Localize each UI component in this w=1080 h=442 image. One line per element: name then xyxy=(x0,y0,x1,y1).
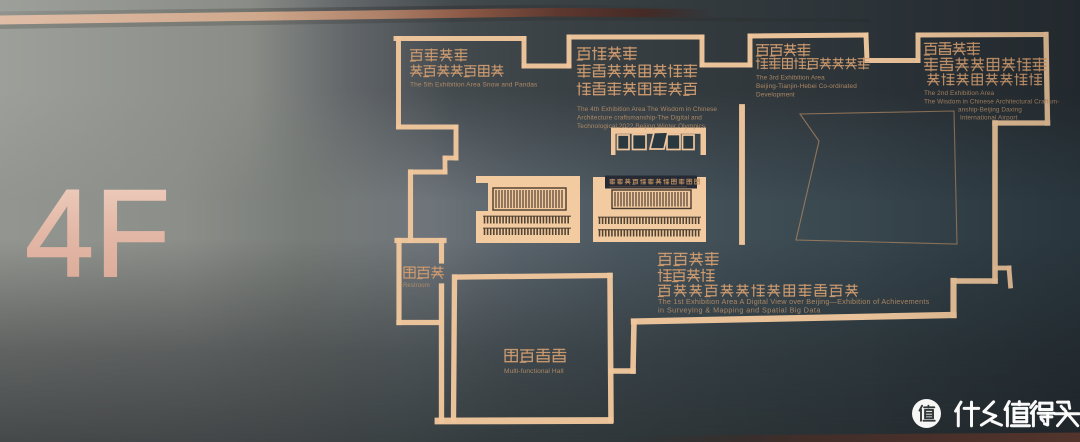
svg-text:in Surveying & Mapping and Spa: in Surveying & Mapping and Spatial Big D… xyxy=(658,306,821,315)
svg-text:Architecture craftsmanship-The: Architecture craftsmanship-The Digital a… xyxy=(577,115,702,122)
svg-text:The 3rd Exhibition Area: The 3rd Exhibition Area xyxy=(756,75,825,82)
svg-text:Multi-functional Hall: Multi-functional Hall xyxy=(504,368,564,375)
svg-text:4F: 4F xyxy=(25,165,171,303)
svg-text:Technological 2022 Beijing Win: Technological 2022 Beijing Winter Olympi… xyxy=(577,123,705,130)
svg-text:Development: Development xyxy=(756,92,795,99)
svg-text:The 4th Exhibition Area The Wi: The 4th Exhibition Area The Wisdom in Ch… xyxy=(577,106,717,113)
svg-text:Restroom: Restroom xyxy=(403,283,430,289)
svg-text:The 5th Exhibition Area Snow a: The 5th Exhibition Area Snow and Pandas xyxy=(410,82,538,89)
svg-text:Beijing-Tianjin-Hebei Co-ordin: Beijing-Tianjin-Hebei Co-ordinated xyxy=(756,83,857,90)
